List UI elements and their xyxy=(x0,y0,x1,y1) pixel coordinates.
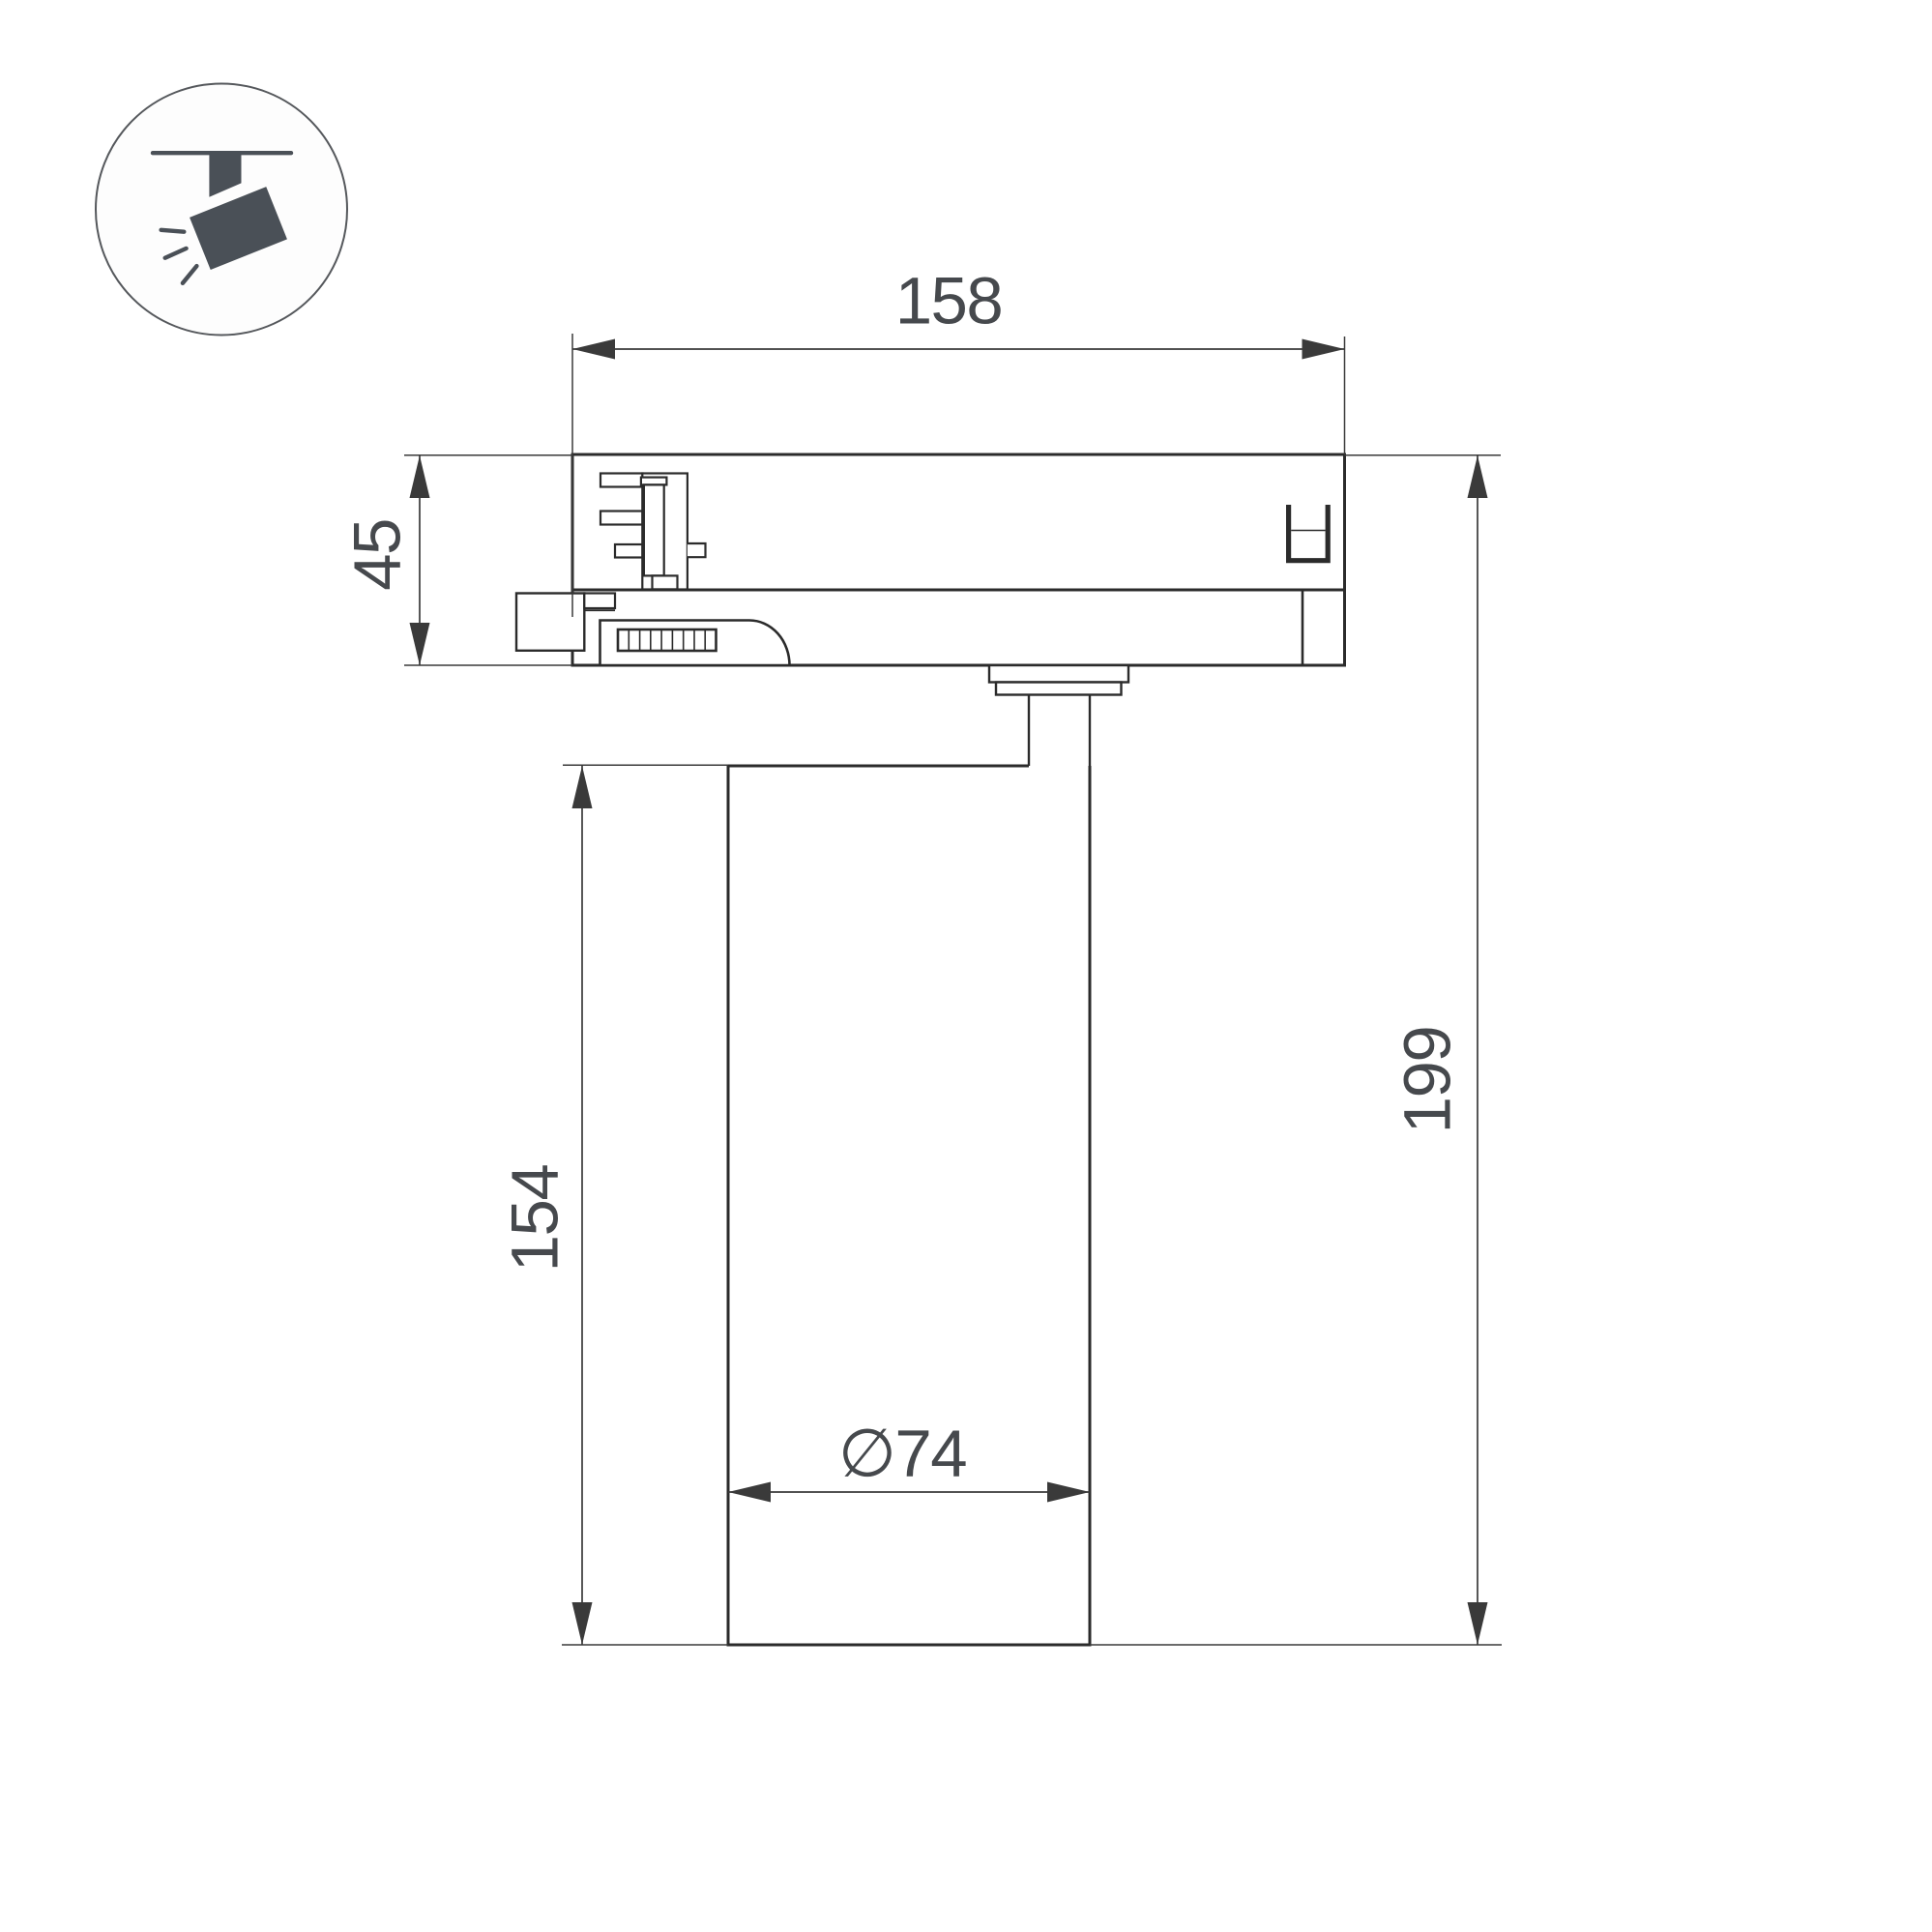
svg-text:154: 154 xyxy=(498,1165,572,1273)
svg-text:199: 199 xyxy=(1390,1027,1465,1134)
svg-text:∅74: ∅74 xyxy=(838,1417,966,1491)
svg-text:45: 45 xyxy=(340,519,415,591)
svg-text:158: 158 xyxy=(895,264,1003,338)
